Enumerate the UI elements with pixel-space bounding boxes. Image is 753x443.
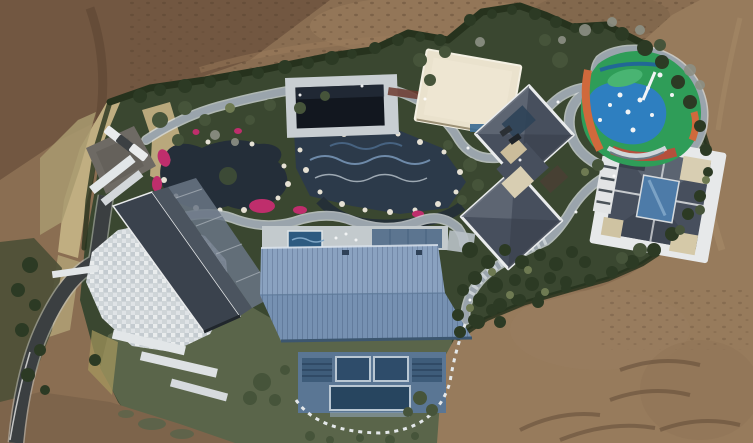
deck-furniture xyxy=(355,239,358,242)
roof-vent xyxy=(342,250,349,255)
pond-island xyxy=(219,167,237,185)
deck-furniture xyxy=(345,233,348,236)
window xyxy=(336,357,370,381)
picture-window xyxy=(330,386,410,410)
entry-step xyxy=(330,412,410,417)
roof-vent xyxy=(416,250,422,255)
window xyxy=(374,357,408,381)
hydroseed-stain xyxy=(170,429,194,439)
dirt-speckle xyxy=(600,290,753,350)
aerial-photo xyxy=(0,0,753,443)
hydroseed-stain xyxy=(118,410,134,418)
cream-terrace xyxy=(601,217,624,238)
deck-furniture xyxy=(335,237,338,240)
aerial-photo-canvas xyxy=(0,0,753,443)
roof-seams xyxy=(260,293,472,341)
hydroseed-stain xyxy=(138,418,166,430)
